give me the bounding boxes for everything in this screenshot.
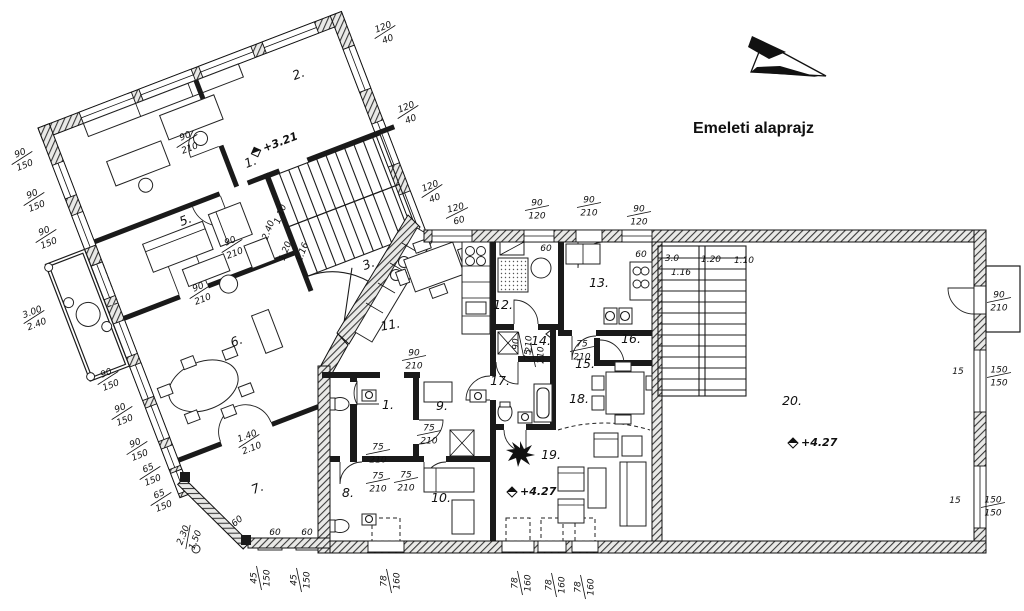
side-table [622, 436, 642, 456]
room-label: 19. [541, 447, 561, 462]
dimension-label: 65150 [135, 460, 166, 490]
svg-text:16.: 16. [621, 331, 641, 346]
svg-text:60: 60 [269, 528, 281, 538]
partition-wall [413, 378, 419, 420]
room-label: 9. [436, 398, 448, 413]
dimension-label: 1.402.10 [234, 428, 265, 458]
wall-south [318, 541, 986, 553]
svg-text:1.20: 1.20 [701, 255, 721, 265]
svg-text:2.: 2. [290, 65, 307, 83]
svg-text:19.: 19. [541, 447, 561, 462]
svg-text:210: 210 [573, 353, 590, 363]
door-arc [948, 288, 974, 314]
dimension-label: 78160 [511, 571, 534, 595]
svg-text:120: 120 [528, 212, 545, 222]
partition-wall [496, 324, 514, 330]
room-label: 13. [589, 275, 609, 290]
balcony [44, 245, 141, 382]
stove-icon [466, 247, 475, 256]
dimension-label: 12040 [417, 178, 448, 208]
svg-text:17.: 17. [490, 373, 510, 388]
svg-text:18.: 18. [569, 391, 589, 406]
dimension-label: 75210 [570, 340, 594, 363]
bed [424, 468, 474, 492]
svg-text:3.0: 3.0 [665, 254, 680, 264]
page-title: Emeleti alaprajz [693, 120, 814, 137]
wall-west [318, 366, 330, 553]
partition-wall [526, 424, 550, 430]
kitchenette [630, 262, 652, 300]
partition-wall [558, 242, 564, 336]
dimension-label: 150150 [981, 496, 1005, 519]
bathroom-17 [498, 384, 552, 423]
dimension-label: 90150 [7, 145, 38, 175]
room-label: 1. [382, 397, 394, 412]
dimension-label: 12040 [393, 99, 424, 129]
room-label: 20. [782, 393, 802, 408]
washbasin-icon [470, 390, 486, 402]
sofa [141, 203, 252, 273]
svg-text:7.: 7. [249, 479, 266, 497]
dimension-label: 1.16 [671, 268, 691, 278]
partition-wall [177, 441, 222, 462]
svg-text:60: 60 [452, 215, 466, 228]
svg-text:11.: 11. [379, 315, 401, 333]
shower-icon [498, 258, 528, 292]
svg-text:1.16: 1.16 [295, 241, 312, 264]
svg-text:1.: 1. [382, 397, 394, 412]
partition-wall [490, 242, 496, 330]
armchair [558, 467, 584, 491]
dimension-label: 90210 [402, 349, 426, 372]
svg-text:40: 40 [404, 113, 419, 127]
dimension-label: 78160 [574, 575, 597, 599]
chair-icon [100, 320, 113, 333]
dimension-label: 65150 [146, 486, 177, 516]
partition-wall [350, 404, 357, 462]
svg-text:13.: 13. [589, 275, 609, 290]
svg-text:160: 160 [524, 574, 534, 591]
dimension-label: 15 [949, 496, 961, 506]
dimension-label: 1.16 [295, 241, 312, 264]
svg-text:60: 60 [540, 244, 552, 254]
room-label: 8. [342, 485, 354, 500]
dimension-label: 90120 [627, 205, 651, 228]
door-arc [340, 462, 362, 484]
stove-icon [477, 257, 486, 266]
dimension-label: 90210 [577, 196, 601, 219]
svg-text:40: 40 [428, 192, 443, 206]
elevation-value: +4.27 [520, 485, 557, 498]
level-marker: +4.27 [788, 436, 838, 449]
chair-icon [137, 176, 155, 194]
svg-text:60: 60 [635, 250, 647, 260]
floor-plan-sheet: Emeleti alaprajz 1.2.3.5.6.7.1.8.9.10.11… [0, 0, 1024, 611]
svg-text:150: 150 [990, 379, 1007, 389]
room-label: 12. [493, 297, 513, 312]
svg-text:210: 210 [369, 456, 386, 466]
sideboard [252, 310, 283, 354]
partition-wall [490, 400, 496, 541]
svg-text:8.: 8. [342, 485, 354, 500]
svg-text:20.: 20. [782, 393, 802, 408]
svg-text:1.16: 1.16 [671, 268, 691, 278]
svg-text:160: 160 [558, 576, 568, 593]
armchair [594, 433, 618, 457]
partition-wall [404, 372, 420, 378]
dimension-label: 1.20 [701, 255, 721, 265]
stove-icon [466, 257, 475, 266]
partition-wall [330, 456, 340, 462]
dimension-label: 2.40 [261, 219, 278, 242]
svg-text:210: 210 [537, 346, 547, 363]
coffee-table [588, 468, 606, 508]
level-marker: +3.21 [249, 130, 300, 160]
dimension-label: 150150 [987, 366, 1011, 389]
door-arc [514, 300, 538, 324]
svg-text:1.10: 1.10 [734, 256, 754, 266]
armchair [558, 499, 584, 523]
partition-wall [490, 330, 496, 376]
dimension-label: 78160 [380, 569, 403, 593]
room-label: 17. [490, 373, 510, 388]
room-label: 2. [290, 65, 307, 83]
svg-text:60: 60 [301, 528, 313, 538]
living-set-19 [506, 433, 646, 526]
dimension-label: 60 [269, 528, 281, 538]
dimension-label: 75210 [366, 472, 390, 495]
svg-text:210: 210 [397, 484, 414, 494]
dimension-label: 75210 [394, 471, 418, 494]
balcony-table [73, 299, 104, 330]
partition-wall [123, 295, 181, 321]
partition-wall [446, 456, 496, 462]
cabinet [452, 500, 474, 534]
bathroom-12 [498, 242, 528, 292]
room-label: 7. [249, 479, 266, 497]
dimension-label: 90120 [525, 199, 549, 222]
dimension-label: 1.10 [734, 256, 754, 266]
table [531, 258, 551, 278]
svg-text:150: 150 [263, 569, 273, 586]
wall-room20-west [652, 242, 662, 541]
svg-text:9.: 9. [436, 398, 448, 413]
svg-text:150: 150 [303, 571, 313, 588]
stove-icon [477, 247, 486, 256]
partition-wall [496, 424, 504, 430]
dimension-label: 90150 [107, 400, 138, 430]
door-opening [576, 230, 602, 242]
svg-text:210: 210 [369, 485, 386, 495]
svg-text:10.: 10. [431, 490, 451, 505]
wide-opening [558, 423, 650, 430]
svg-text:160: 160 [393, 572, 403, 589]
floor-plan-drawing: Emeleti alaprajz 1.2.3.5.6.7.1.8.9.10.11… [0, 0, 1024, 611]
dimension-label: 45150 [290, 568, 313, 592]
dimension-label: 90150 [31, 223, 62, 253]
room-label: 3. [360, 255, 377, 273]
partition-wall [322, 372, 380, 378]
dimension-label: 78160 [545, 573, 568, 597]
kitchen-block [462, 242, 490, 334]
sink-icon [466, 302, 486, 314]
sofa [620, 462, 646, 526]
wall-north [424, 230, 986, 242]
partition-wall [564, 330, 572, 336]
svg-text:40: 40 [381, 33, 396, 47]
dimension-label: 15 [952, 367, 964, 377]
dimension-label: 60 [635, 250, 647, 260]
svg-text:210: 210 [580, 209, 597, 219]
chair-icon [62, 296, 75, 309]
dimension-label: 90150 [19, 186, 50, 216]
dimension-label: 60 [540, 244, 552, 254]
dimension-label: 3.0 [665, 254, 680, 264]
svg-text:3.: 3. [360, 255, 377, 273]
room-label: 18. [569, 391, 589, 406]
svg-text:15: 15 [952, 367, 964, 377]
svg-text:210: 210 [990, 304, 1007, 314]
svg-text:2.40: 2.40 [261, 219, 278, 242]
dimension-label: 90210 [987, 291, 1011, 314]
door-opening [974, 286, 986, 314]
dimension-label: 75210 [366, 443, 390, 466]
svg-text:160: 160 [587, 578, 597, 595]
svg-text:210: 210 [420, 437, 437, 447]
dimension-label: 60 [301, 528, 313, 538]
svg-text:210: 210 [405, 362, 422, 372]
dimension-label: 90150 [122, 435, 153, 465]
dimension-label: 45150 [250, 566, 273, 590]
svg-text:12.: 12. [493, 297, 513, 312]
room-label: 10. [431, 490, 451, 505]
level-marker: +4.27 [507, 485, 557, 498]
dimension-label: 3.002.40 [19, 304, 50, 334]
room-label: 16. [621, 331, 641, 346]
partition-wall [271, 403, 321, 426]
room-label: 11. [379, 315, 401, 333]
svg-text:150: 150 [984, 509, 1001, 519]
elevation-value: +3.21 [261, 130, 300, 155]
svg-text:15: 15 [949, 496, 961, 506]
dining-set-18 [592, 362, 652, 424]
elevation-value: +4.27 [801, 436, 838, 449]
svg-text:120: 120 [630, 218, 647, 228]
partition-wall [219, 145, 239, 188]
dimension-label: 12060 [443, 201, 472, 229]
dimension-label: 12040 [370, 19, 401, 49]
north-arrow-icon [748, 36, 826, 77]
